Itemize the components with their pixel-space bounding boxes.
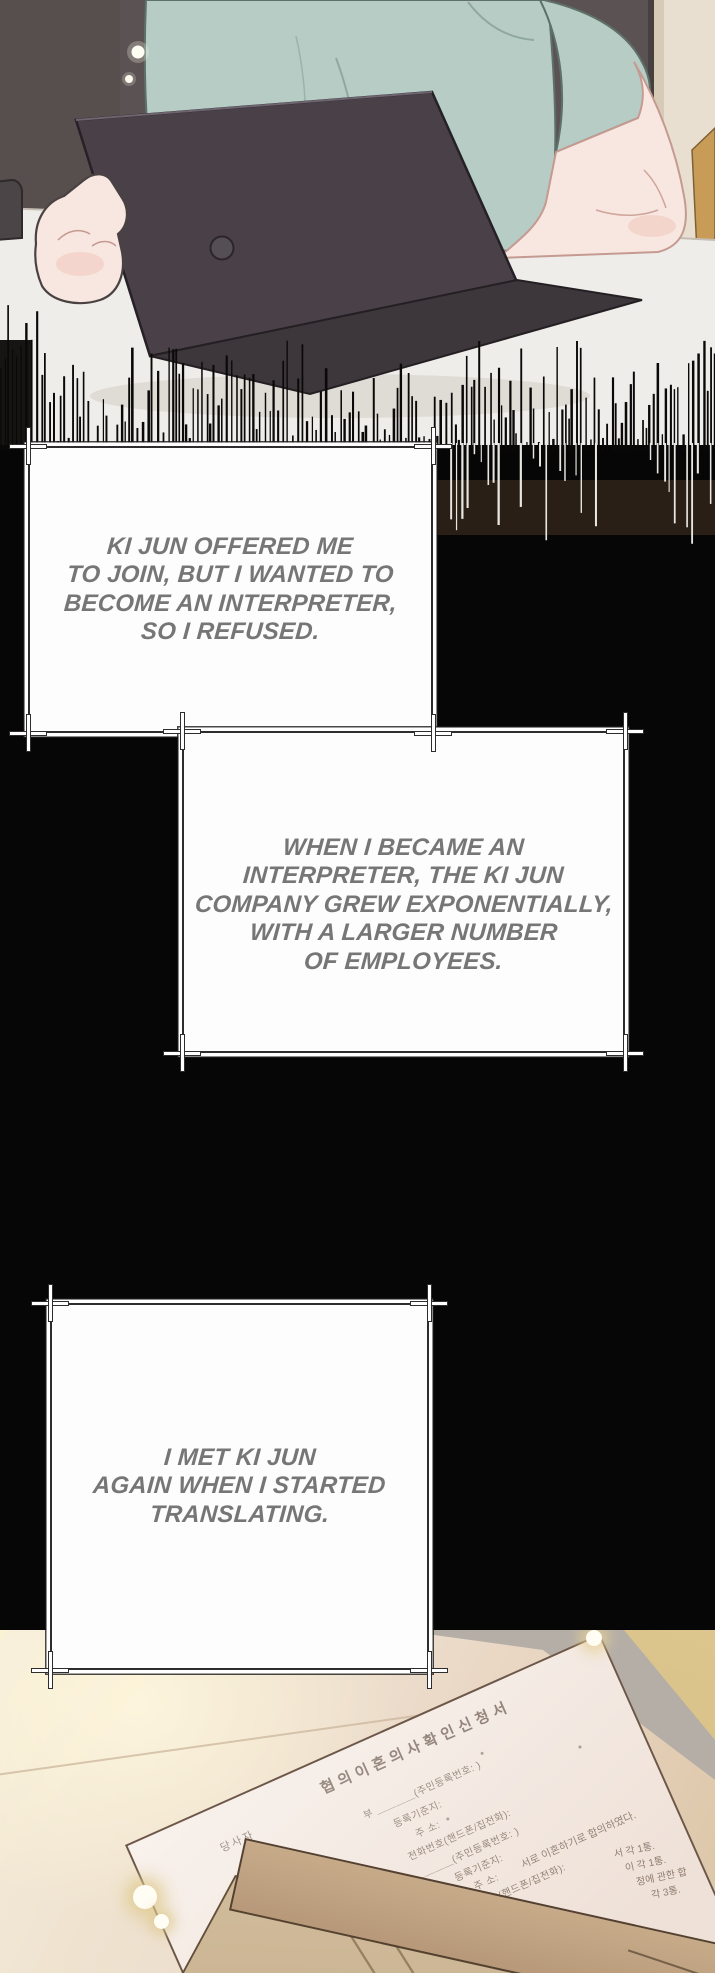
narration-panel-1: KI JUN OFFERED ME TO JOIN, BUT I WANTED …	[28, 446, 433, 733]
narration-line: AGAIN WHEN I STARTED	[92, 1472, 386, 1501]
narration-panel-3: I MET KI JUN AGAIN WHEN I STARTED TRANSL…	[50, 1303, 429, 1670]
panel-corner-mark	[180, 1034, 185, 1072]
narration-line: I MET KI JUN	[163, 1444, 317, 1473]
cup	[0, 180, 22, 240]
office-scene	[0, 0, 715, 460]
panel-corner-mark	[623, 712, 628, 750]
narration-line: TO JOIN, BUT I WANTED TO	[66, 561, 395, 590]
narration-line: INTERPRETER, THE KI JUN	[242, 862, 565, 891]
narration-line: TRANSLATING.	[149, 1501, 330, 1530]
sparkle-glow-icon	[154, 1914, 169, 1929]
panel-corner-mark	[427, 1284, 432, 1322]
panel-corner-mark	[623, 1034, 628, 1072]
webtoon-page: 협의이혼의사확인신청서 당사자 부 ＿＿＿＿(주민등록번호: ) 등록기준지: …	[0, 0, 715, 1973]
narration-panel-2: WHEN I BECAME AN INTERPRETER, THE KI JUN…	[182, 731, 625, 1053]
sparkle-glow-icon	[133, 1885, 157, 1909]
panel-corner-mark	[427, 1651, 432, 1689]
narration-text: KI JUN OFFERED ME TO JOIN, BUT I WANTED …	[30, 448, 431, 731]
office-scene-art	[0, 0, 715, 460]
narration-line: OF EMPLOYEES.	[303, 948, 504, 977]
narration-line: WHEN I BECAME AN	[282, 834, 525, 863]
narration-line: COMPANY GREW EXPONENTIALLY,	[194, 891, 614, 920]
panel-corner-mark	[26, 714, 31, 752]
narration-text: WHEN I BECAME AN INTERPRETER, THE KI JUN…	[184, 733, 623, 1051]
paper-speck	[480, 1751, 484, 1755]
panel-corner-mark	[48, 1651, 53, 1689]
narration-line: WITH A LARGER NUMBER	[249, 919, 559, 948]
paper-speck	[578, 1745, 582, 1749]
narration-text: I MET KI JUN AGAIN WHEN I STARTED TRANSL…	[52, 1305, 427, 1668]
panel-corner-mark	[180, 712, 185, 750]
panel-corner-mark	[26, 427, 31, 465]
narration-line: SO I REFUSED.	[140, 618, 321, 647]
copies-list: 서 각 1통. 이 각 1통. 정에 관한 합 각 3통.	[613, 1834, 692, 1911]
laptop-logo-icon	[211, 237, 234, 260]
hand-blush	[56, 252, 104, 276]
narration-line: KI JUN OFFERED ME	[106, 533, 354, 562]
panel-corner-mark	[431, 427, 436, 465]
sparkle-glow-icon	[586, 1630, 602, 1646]
narration-line: BECOME AN INTERPRETER,	[63, 590, 398, 619]
paper-speck	[446, 1817, 450, 1821]
panel-corner-mark	[48, 1284, 53, 1322]
desk-scene: 협의이혼의사확인신청서 당사자 부 ＿＿＿＿(주민등록번호: ) 등록기준지: …	[0, 1630, 715, 1973]
elbow-blush	[628, 215, 676, 237]
panel-corner-mark	[431, 714, 436, 752]
